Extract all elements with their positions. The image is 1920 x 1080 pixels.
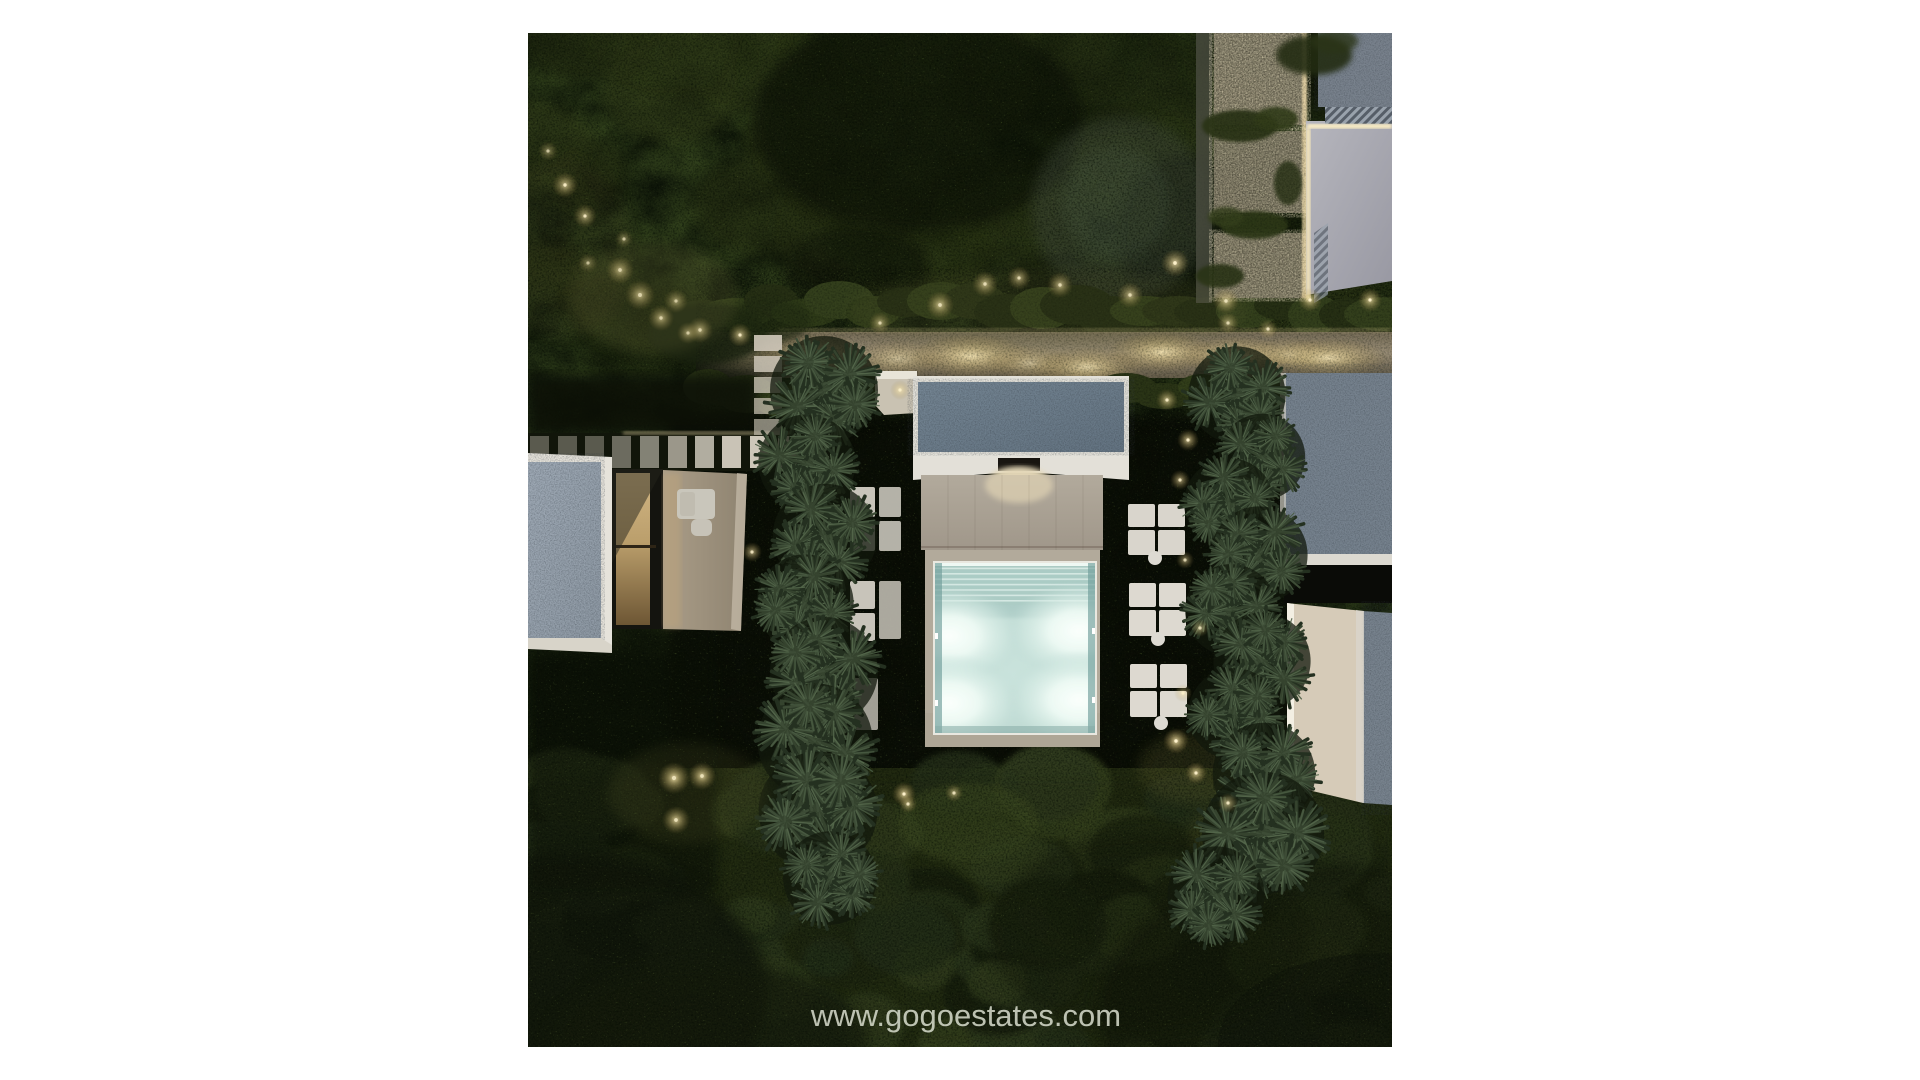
svg-text:www.gogoestates.com: www.gogoestates.com xyxy=(810,998,1121,1033)
